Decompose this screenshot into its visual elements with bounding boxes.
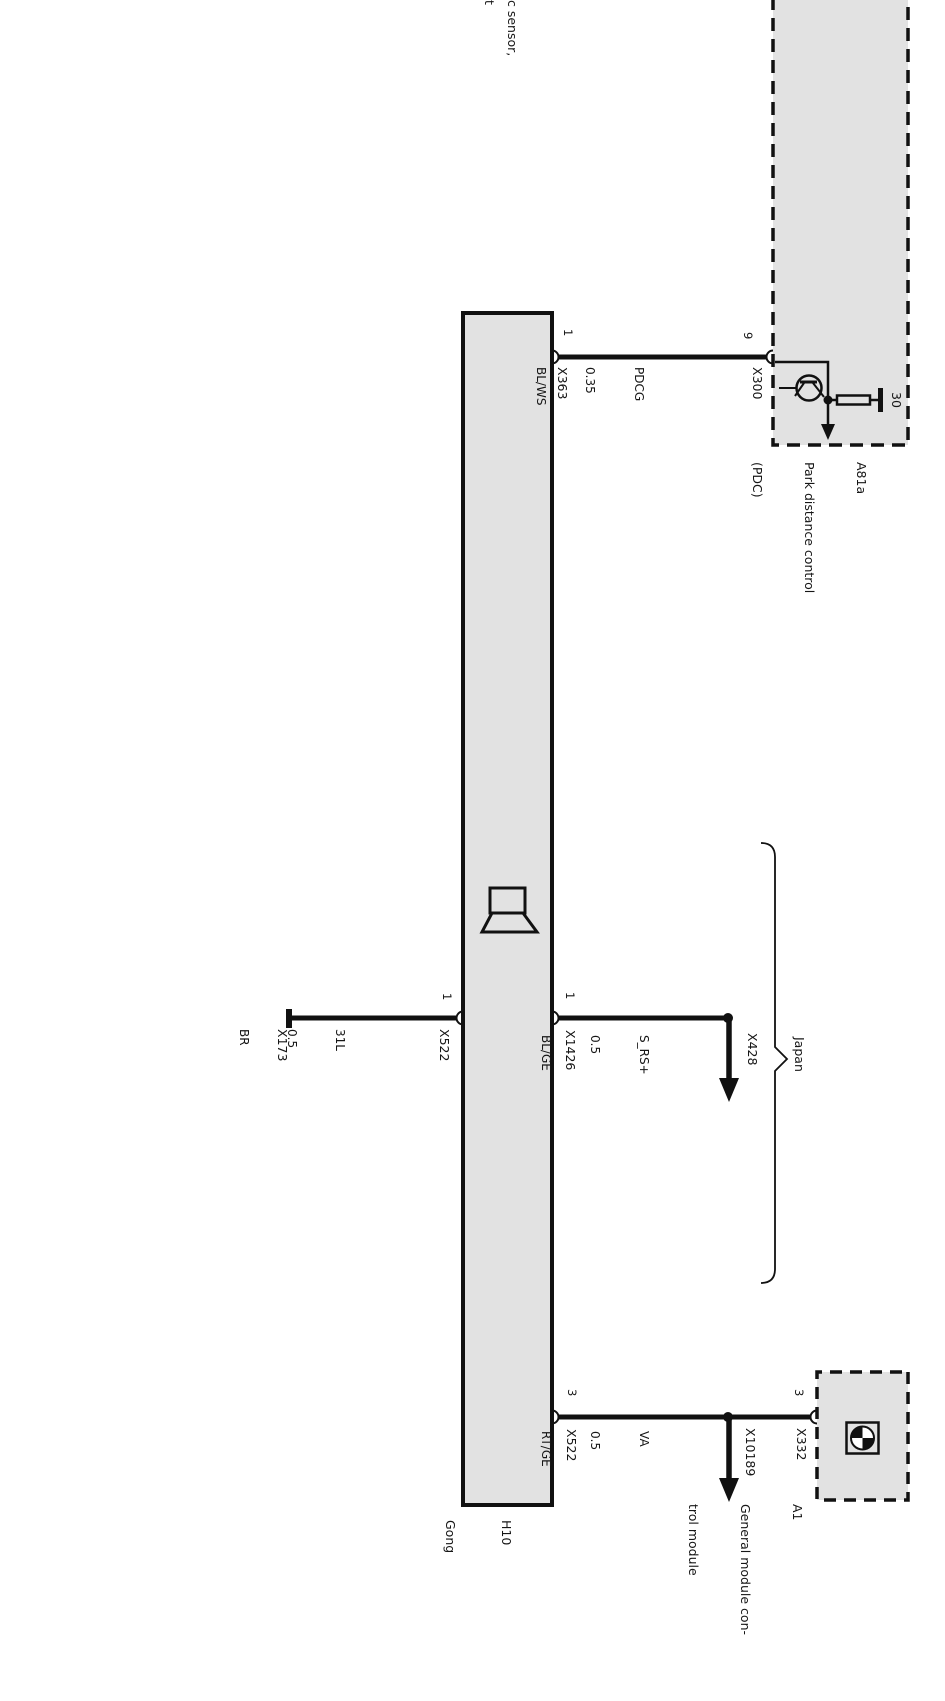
ground-wire-name: 31L xyxy=(330,1029,350,1051)
srs-branch-connector-label: X428 xyxy=(745,1033,759,1065)
gm-pin-label: 3 xyxy=(792,1389,806,1396)
va-gong-pin-label: 3 xyxy=(565,1389,579,1396)
pdc-connector-label: X300 xyxy=(750,367,764,399)
srs-wire-spec: S_RS+ 0.5 BL/GE xyxy=(507,1035,682,1075)
pdcg-gong-pin-label: 1 xyxy=(561,329,575,336)
srs-gong-pin-label: 1 xyxy=(563,992,577,999)
va-branch-connector-label: X10189 xyxy=(743,1428,757,1476)
gong-module-code: H10 xyxy=(492,1520,520,1553)
gm-module-label: A1 General module con- trol module xyxy=(653,1504,837,1635)
ground-wire-spec: 31L 0.5 BR xyxy=(206,1029,378,1051)
gong-module-label: H10 Gong xyxy=(408,1520,548,1553)
srs-wire-name: S_RS+ xyxy=(633,1035,654,1075)
gm-module-title2: trol module xyxy=(681,1504,705,1635)
pdc-module-label: A81a Park distance control (PDC) xyxy=(717,462,901,593)
gong-module-title: Gong xyxy=(436,1520,464,1553)
diagram-canvas: c sensor, t 30 9 X300 A81a Park distance… xyxy=(0,0,945,1701)
truncated-edge-label-line1: c sensor, xyxy=(505,0,519,56)
pdc-module-title: Park distance control xyxy=(797,462,821,593)
pdcg-wire-spec: PDCG 0.35 BL/WS xyxy=(502,367,677,405)
gm-connector-label: X332 xyxy=(794,1428,808,1460)
va-wire-spec: VA 0.5 RT/GE xyxy=(507,1431,682,1467)
srs-wire-gauge: 0.5 xyxy=(584,1035,605,1075)
pdcg-wire-name: PDCG xyxy=(628,367,649,405)
wiring-diagram-page: c sensor, t 30 9 X300 A81a Park distance… xyxy=(0,0,945,1701)
va-wire-name: VA xyxy=(633,1431,654,1467)
japan-brace xyxy=(761,843,787,1283)
pdc-module-box xyxy=(773,0,908,445)
branch-arrow-x10189 xyxy=(719,1478,739,1502)
pdc-module-code: A81a xyxy=(849,462,873,593)
va-wire-gauge: 0.5 xyxy=(584,1431,605,1467)
branch-arrow-x428 xyxy=(719,1078,739,1102)
wire-ground xyxy=(289,1009,463,1028)
truncated-edge-label-line2: t xyxy=(482,0,496,5)
pdcg-wire-gauge: 0.35 xyxy=(579,367,600,405)
terminal-30-label: 30 xyxy=(889,387,903,413)
ground-wire-color: BR xyxy=(234,1029,254,1051)
pdcg-wire-color: BL/WS xyxy=(530,367,551,405)
ground-gong-connector-label: X522 xyxy=(437,1029,451,1061)
japan-region-label: Japan xyxy=(792,1037,806,1072)
ground-terminal-label: X173 xyxy=(275,1029,289,1061)
gm-module-title1: General module con- xyxy=(733,1504,757,1635)
pdc-module-title2: (PDC) xyxy=(745,462,769,593)
gm-module-code: A1 xyxy=(785,1504,809,1635)
gong-module-box xyxy=(463,313,552,1505)
ground-gong-pin-label: 1 xyxy=(440,993,454,1000)
va-wire-color: RT/GE xyxy=(535,1431,556,1467)
wire-pdcg xyxy=(552,351,773,364)
srs-wire-color: BL/GE xyxy=(535,1035,556,1075)
pdc-pin-label: 9 xyxy=(741,332,755,339)
